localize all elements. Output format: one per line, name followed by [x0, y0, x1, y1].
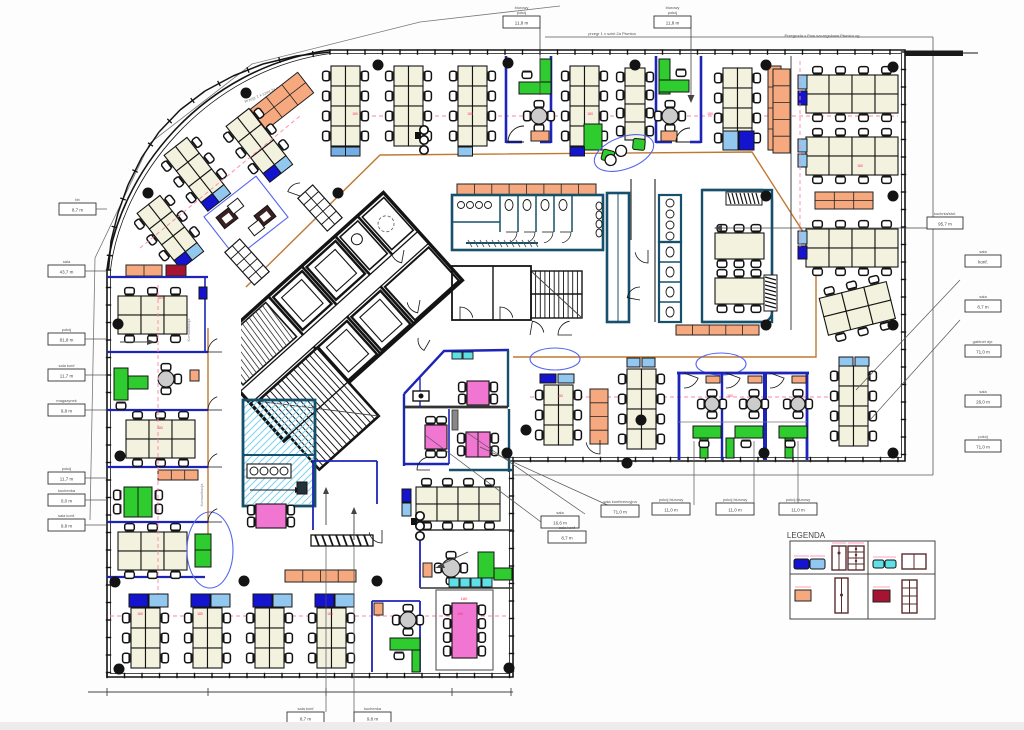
svg-text:43,7 m: 43,7 m: [60, 270, 74, 275]
svg-text:sala konf: sala konf: [297, 706, 314, 711]
svg-text:71,0 m: 71,0 m: [976, 445, 990, 450]
svg-text:180: 180: [457, 612, 463, 616]
svg-text:180: 180: [352, 112, 358, 116]
svg-text:gabinet dyr.: gabinet dyr.: [973, 339, 994, 344]
svg-text:11,8 m: 11,8 m: [515, 21, 529, 26]
svg-text:11,7 m: 11,7 m: [60, 477, 74, 482]
svg-text:sala: sala: [556, 510, 564, 515]
svg-text:przegr 1 x szint 2a Piwnica: przegr 1 x szint 2a Piwnica: [588, 31, 636, 36]
svg-text:8,7 m: 8,7 m: [300, 717, 312, 722]
svg-text:180: 180: [461, 596, 468, 601]
svg-text:11,8 m: 11,8 m: [666, 21, 680, 26]
svg-text:magazynek: magazynek: [56, 398, 76, 403]
svg-text:sala konf: sala konf: [58, 363, 75, 368]
svg-text:sala: sala: [63, 259, 71, 264]
svg-text:bb: bb: [75, 197, 80, 202]
svg-text:sala: sala: [979, 389, 987, 394]
svg-text:sala konf: sala konf: [559, 525, 576, 530]
svg-text:pokój: pokój: [978, 434, 988, 439]
svg-text:180: 180: [857, 164, 863, 168]
svg-text:180: 180: [467, 112, 473, 116]
svg-text:180: 180: [157, 296, 163, 300]
svg-text:pokój: pokój: [668, 10, 678, 15]
svg-text:180: 180: [587, 112, 593, 116]
svg-text:pokój: pokój: [62, 466, 72, 471]
svg-text:Komunikacja: Komunikacja: [186, 318, 191, 342]
svg-text:Komunikacja: Komunikacja: [199, 483, 204, 507]
svg-text:pokój biurowy: pokój biurowy: [659, 497, 683, 502]
svg-text:81,8 m: 81,8 m: [60, 338, 74, 343]
svg-text:180: 180: [727, 394, 733, 398]
svg-text:pokój biurowy: pokój biurowy: [786, 497, 810, 502]
svg-text:11,0 m: 11,0 m: [728, 508, 742, 513]
svg-text:sala: sala: [979, 249, 987, 254]
svg-text:kuchenka: kuchenka: [58, 488, 76, 493]
svg-text:0,0 m: 0,0 m: [61, 499, 73, 504]
svg-text:8,7 m: 8,7 m: [561, 536, 573, 541]
svg-text:180: 180: [557, 394, 563, 398]
svg-text:sala: sala: [979, 294, 987, 299]
svg-text:LEGENDA: LEGENDA: [787, 531, 826, 540]
svg-text:Przegroda x Pow szczegolowa Pi: Przegroda x Pow szczegolowa Piwnica og: [785, 33, 860, 38]
svg-text:pokój biurowy: pokój biurowy: [723, 497, 747, 502]
svg-text:konf.: konf.: [978, 260, 988, 265]
svg-text:26,0 m: 26,0 m: [976, 400, 990, 405]
svg-text:11,0 m: 11,0 m: [664, 508, 678, 513]
svg-text:kuchnia/stol.: kuchnia/stol.: [934, 211, 956, 216]
svg-text:95,7 m: 95,7 m: [938, 222, 952, 227]
svg-text:71,0 m: 71,0 m: [976, 350, 990, 355]
svg-text:sala konferencyjna: sala konferencyjna: [603, 499, 637, 504]
svg-text:180: 180: [197, 612, 203, 616]
svg-text:sala konf.: sala konf.: [58, 513, 75, 518]
svg-text:9,8 m: 9,8 m: [61, 409, 73, 414]
svg-text:11,7 m: 11,7 m: [60, 374, 74, 379]
svg-text:pokój: pokój: [62, 327, 72, 332]
svg-text:8,7 m: 8,7 m: [977, 305, 989, 310]
svg-text:pokój: pokój: [517, 10, 527, 15]
svg-text:180: 180: [707, 112, 713, 116]
svg-text:9,8 m: 9,8 m: [367, 717, 379, 722]
svg-text:180: 180: [157, 426, 163, 430]
svg-text:71,0 m: 71,0 m: [613, 510, 627, 515]
svg-text:9,8 m: 9,8 m: [61, 524, 73, 529]
svg-text:11,0 m: 11,0 m: [791, 508, 805, 513]
svg-text:8,7 m: 8,7 m: [72, 208, 84, 213]
svg-text:180: 180: [327, 612, 333, 616]
svg-text:kuchenka: kuchenka: [364, 706, 382, 711]
svg-text:180: 180: [137, 612, 143, 616]
